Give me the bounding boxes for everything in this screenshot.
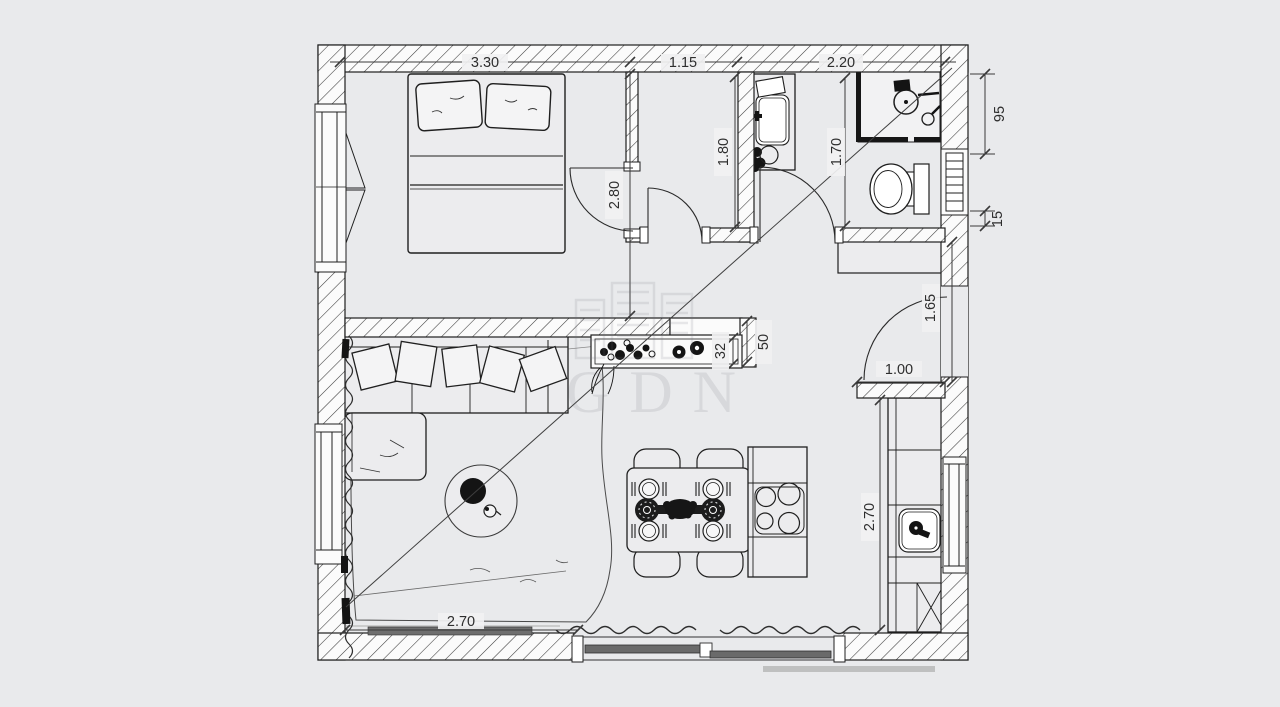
pillow [415, 80, 482, 131]
hall-wardrobe [838, 240, 943, 273]
dim-bath-depth: 1.70 [829, 138, 845, 166]
wall-bedroom-south [345, 318, 670, 337]
dim-kitchen-run: 2.70 [862, 503, 878, 531]
threshold [763, 666, 935, 672]
toilet-tank [914, 164, 929, 214]
bed [408, 74, 565, 253]
washbasin-vanity [749, 74, 796, 172]
dim-closet-width: 1.15 [669, 55, 697, 71]
living-window [315, 424, 342, 564]
sofa-pillow [352, 344, 398, 390]
shower [856, 72, 940, 142]
dim-counter-clear: 50 [756, 334, 772, 350]
dim-shower-width: 95 [992, 106, 1008, 122]
sofa-chaise [344, 413, 426, 480]
dim-closet-depth: 1.80 [716, 138, 732, 166]
dim-bath-width: 2.20 [827, 55, 855, 71]
dim-hall-depth: 1.65 [923, 294, 939, 322]
wall-top [318, 45, 968, 72]
dim-bedroom-depth: 2.80 [607, 181, 623, 209]
pillow [485, 83, 551, 130]
floor-plan-page: 3.30 1.15 2.20 2.80 1.80 1.70 95 15 1.65… [0, 0, 1280, 707]
dim-terrace-window: 2.70 [447, 614, 475, 630]
wall-hall-stub [857, 383, 945, 398]
cup [484, 505, 496, 517]
kitchen-counter-run [888, 398, 945, 632]
watermark-text: GDN [566, 359, 756, 425]
charger-plate [701, 498, 725, 522]
dim-counter-depth: 32 [713, 343, 729, 359]
kitchen-window [943, 457, 966, 573]
wall-closet-bath [738, 72, 754, 242]
toilet [870, 164, 929, 214]
dim-niche: 15 [990, 211, 1006, 227]
radiator-niche [941, 149, 968, 215]
towel-radiator [946, 153, 963, 211]
sofa-pillow [442, 345, 481, 387]
dim-entry-door: 1.00 [885, 362, 913, 378]
floor-plan-drawing: 3.30 1.15 2.20 2.80 1.80 1.70 95 15 1.65… [0, 0, 1280, 707]
coffee-table [460, 478, 486, 504]
coffee-table-rug [445, 465, 517, 537]
dim-bedroom-width: 3.30 [471, 55, 499, 71]
cooktop-counter [748, 447, 807, 577]
wall-bedroom-closet [626, 72, 638, 171]
charger-plate [635, 498, 659, 522]
kitchen-sink [899, 509, 940, 552]
sofa-pillow [395, 341, 437, 386]
